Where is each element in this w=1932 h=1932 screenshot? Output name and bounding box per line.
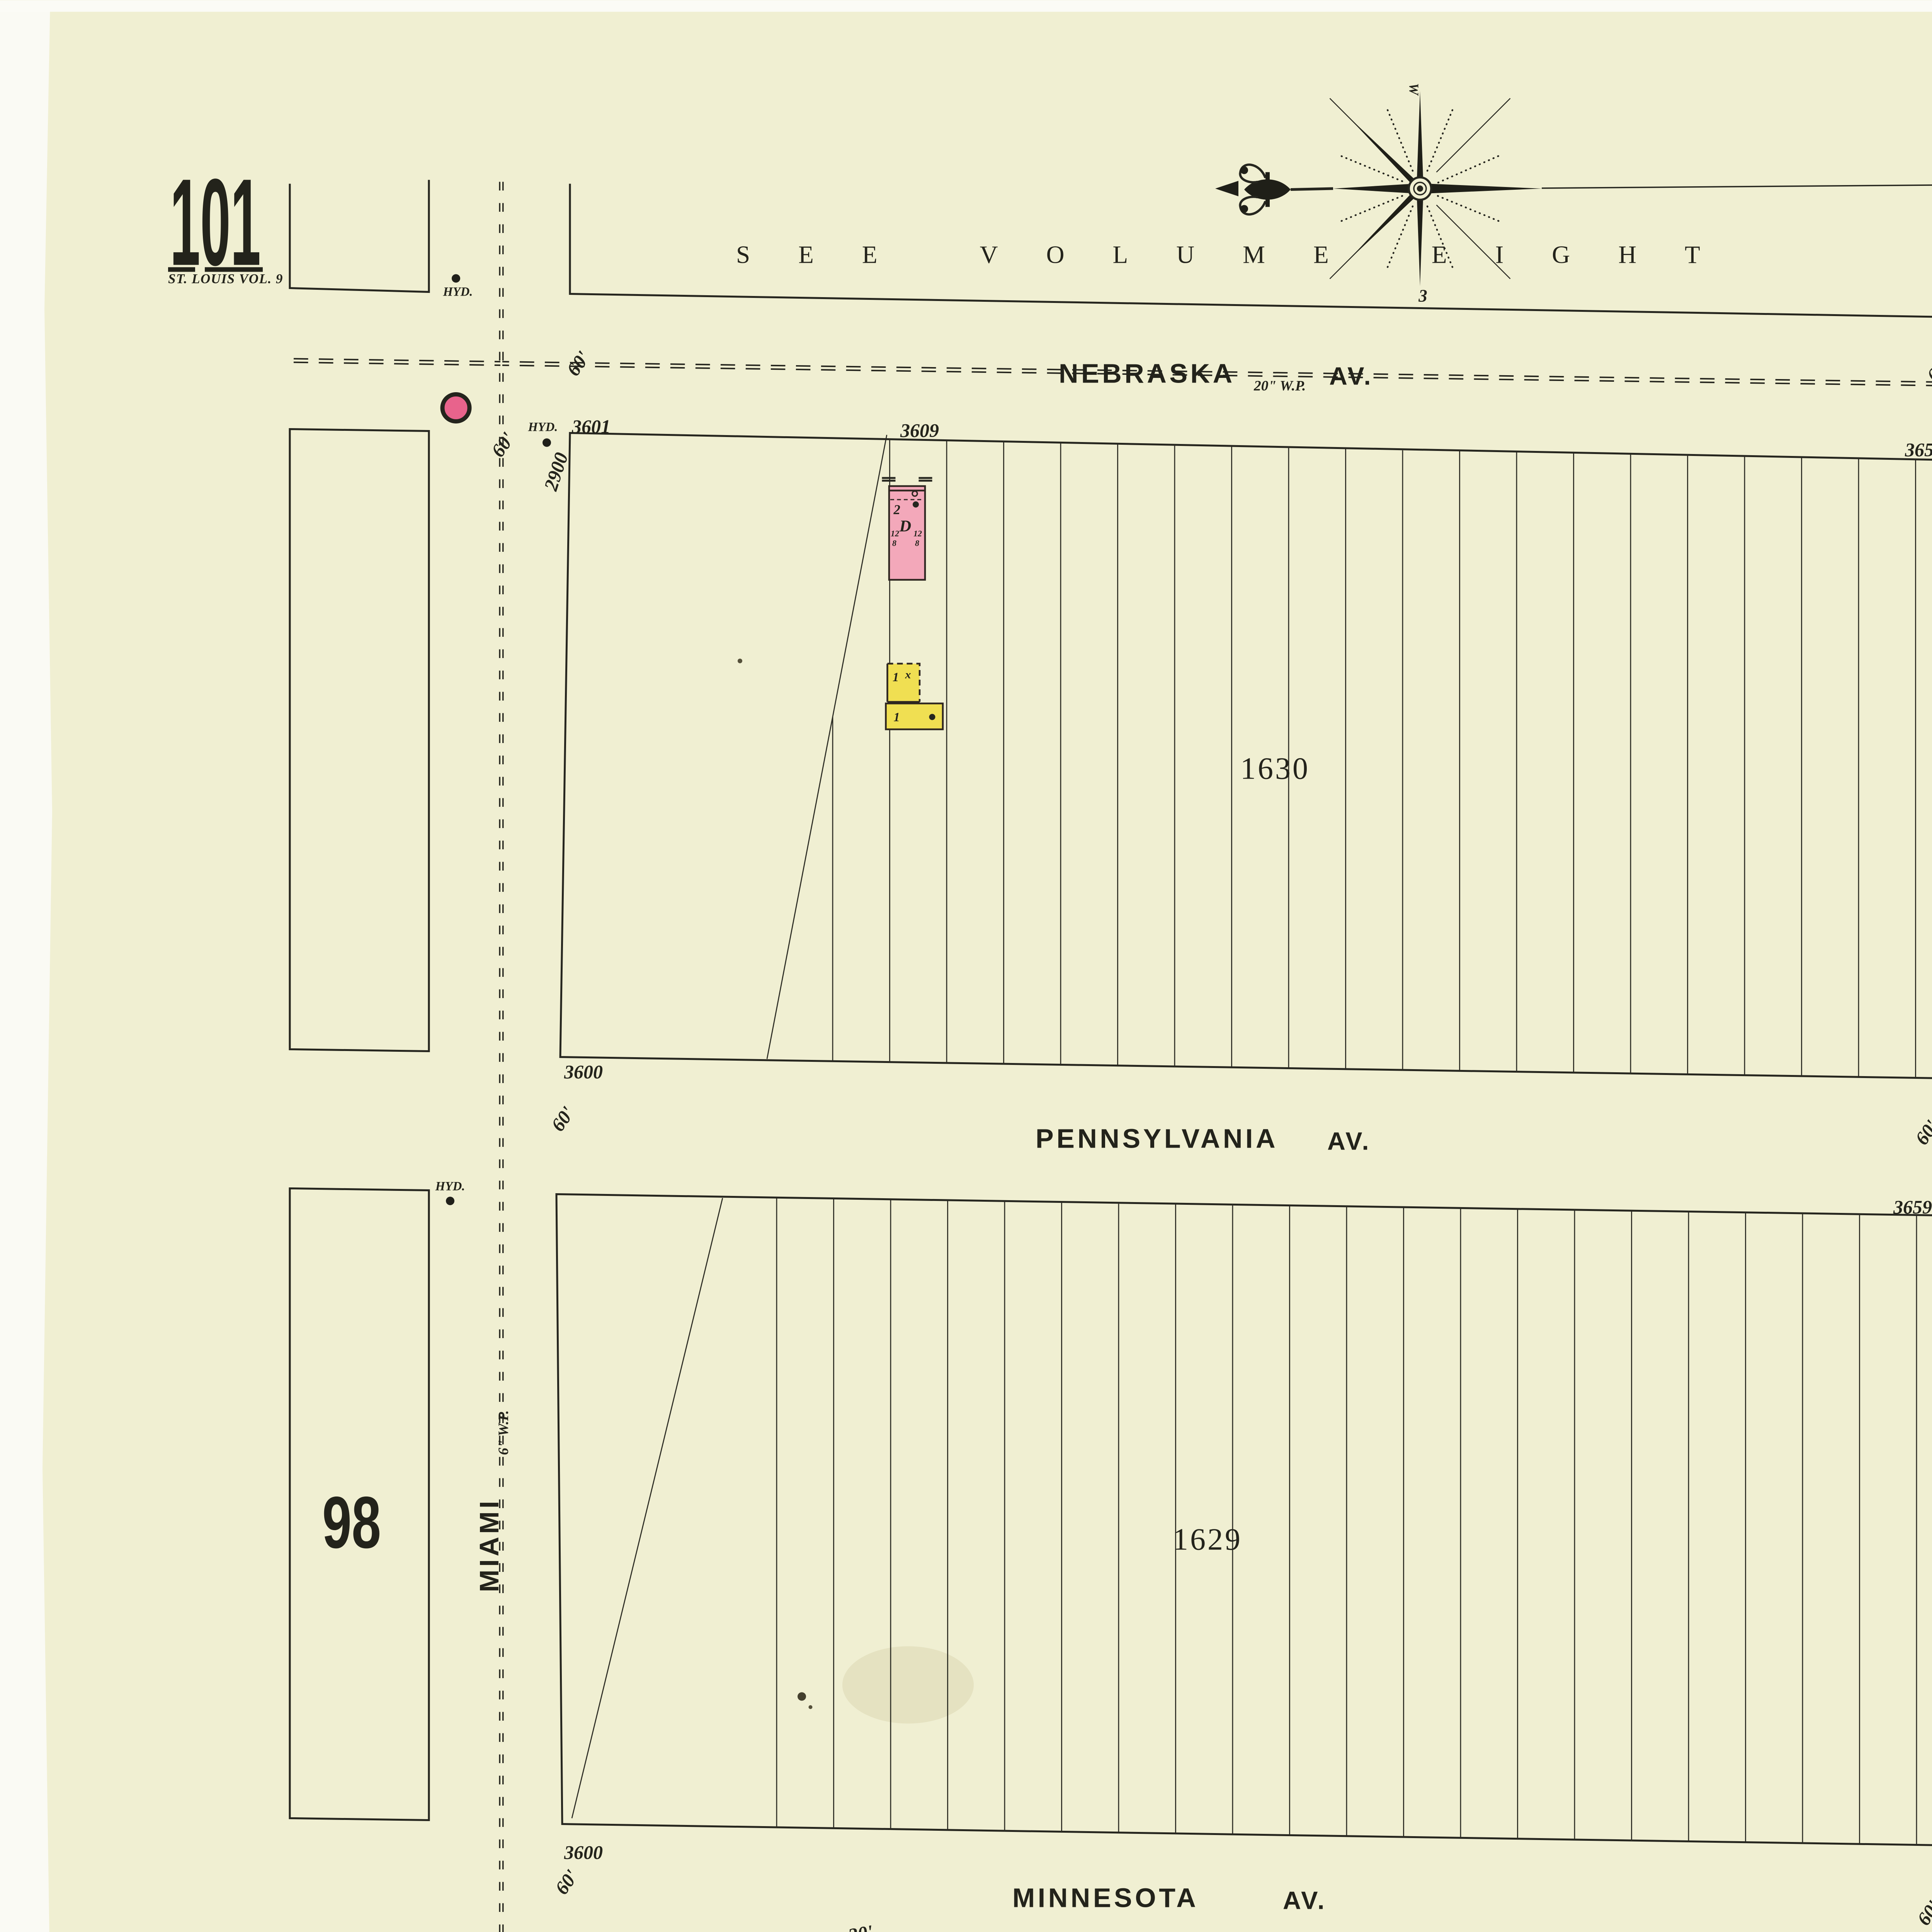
building-dwelling-1630: 2 D 12 8 12 8: [882, 478, 932, 580]
chimney-dot: [913, 502, 919, 508]
height-note: 12: [913, 529, 922, 538]
building-dwelling-letter: D: [899, 517, 912, 536]
street-label-nebraska: NEBRASKA: [1059, 359, 1235, 389]
compass-glyph-bottom: 3: [1418, 286, 1427, 306]
volume-label: ST. LOUIS VOL. 9: [168, 271, 283, 286]
adjacent-page-west-group: 98: [322, 1481, 381, 1563]
street-label-pennsylvania: PENNSYLVANIA: [1036, 1124, 1278, 1154]
height-note: 8: [915, 538, 919, 548]
compass-glyph-top: W: [1406, 83, 1422, 96]
building-stories: 1: [893, 670, 899, 684]
chimney-dot: [929, 714, 935, 720]
hydrant-dot: [543, 439, 551, 447]
hydrant-dot: [446, 1197, 454, 1205]
house-number: 3600: [564, 1061, 603, 1083]
hydrant-label: HYD.: [435, 1180, 465, 1194]
paper-stain: [842, 1646, 974, 1724]
ink-speck: [738, 659, 742, 663]
water-pipe-note-nebraska: 20" W.P.: [1253, 378, 1306, 394]
house-number: 3659: [1893, 1196, 1932, 1218]
cistern-symbol: [442, 395, 469, 422]
street-label-miami: MIAMI: [474, 1498, 504, 1592]
adjacent-page-west: 98: [322, 1481, 381, 1563]
ink-blot: [798, 1692, 806, 1701]
street-type-pennsylvania: AV.: [1327, 1127, 1371, 1155]
building-stories: 2: [893, 502, 901, 517]
stable-cross: x: [905, 668, 911, 681]
top-paper-margin: [0, 0, 1932, 12]
house-number: 3609: [900, 420, 939, 441]
hydrant-label: HYD.: [528, 420, 558, 434]
see-volume-note: SEE VOLUME EIGHT: [736, 241, 1748, 269]
house-number: 3659: [1905, 439, 1932, 461]
sanborn-map-sheet: 2 D 12 8 12 8 1 x 1 3 22 8 D 22 8 3 OPEN…: [0, 0, 1932, 1932]
hydrant-dot: [452, 274, 460, 283]
ink-speck: [809, 1705, 813, 1709]
house-number: 3601: [571, 416, 611, 437]
height-note: 12: [891, 529, 899, 538]
block-number-1629: 1629: [1173, 1523, 1242, 1557]
house-number: 3600: [564, 1842, 603, 1863]
height-note: 8: [892, 538, 896, 548]
street-label-minnesota: MINNESOTA: [1012, 1883, 1199, 1913]
street-type-nebraska: AV.: [1329, 362, 1373, 390]
street-type-minnesota: AV.: [1283, 1886, 1327, 1915]
left-paper-margin: [0, 0, 52, 1932]
lot-lines-1629: [777, 1198, 1917, 1845]
hydrant-label: HYD.: [443, 285, 473, 299]
block-number-1630: 1630: [1240, 752, 1310, 786]
building-stories: 1: [894, 711, 900, 724]
water-pipe-note-miami: 6" W.P.: [496, 1410, 512, 1455]
